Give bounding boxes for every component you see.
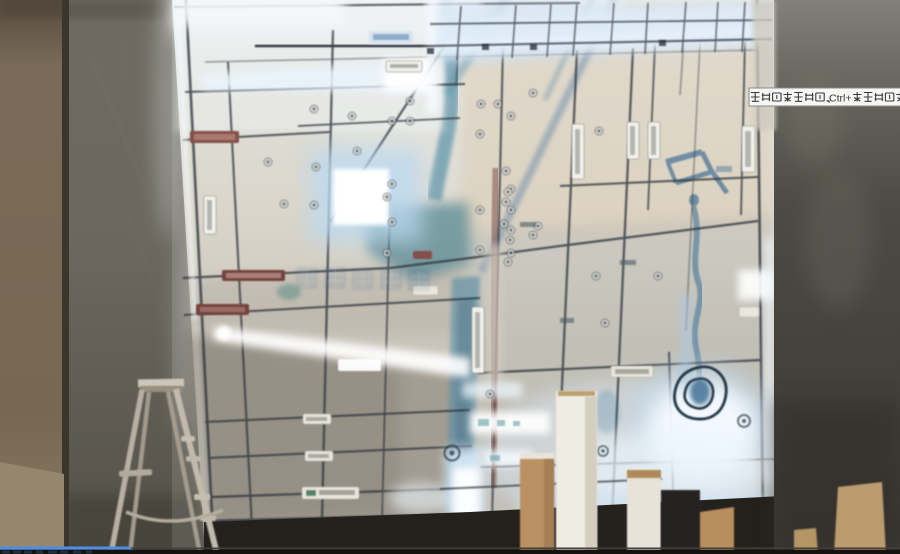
- svg-text:Ctrl+: Ctrl+: [829, 93, 851, 105]
